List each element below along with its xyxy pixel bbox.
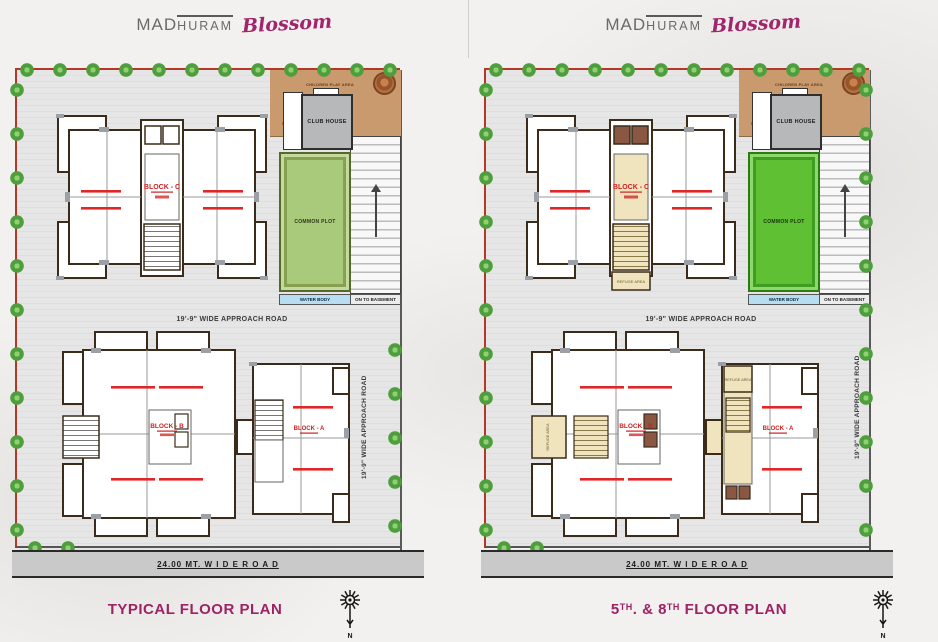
ramp-arrow-icon — [375, 189, 377, 237]
block-a-label: BLOCK - A — [294, 426, 325, 432]
common-plot: COMMON PLOT — [748, 152, 820, 292]
approach-road-label-vertical: 19'-9" WIDE APPROACH ROAD — [361, 352, 373, 502]
plan-title-sup: TH — [620, 602, 633, 612]
lift-shaft — [175, 432, 188, 447]
gazebo-icon — [842, 72, 865, 95]
children-play-label: CHILDREN PLAY AREA — [306, 82, 354, 87]
brand-logo: MADHURAM Blossom — [0, 13, 469, 35]
refuge-area-label: REFUGE AREA — [724, 378, 751, 382]
club-house-lobby — [283, 92, 303, 150]
page: MADHURAM Blossom CHILDREN PLAY AREA ON T… — [0, 0, 938, 642]
refuge-area-label: REFUGE AREA — [617, 279, 646, 284]
brand-logo: MADHURAM Blossom — [469, 13, 938, 35]
main-road: 24.00 MT. W I D E R O A D — [481, 550, 893, 578]
club-house-lobby — [752, 92, 772, 150]
staircase — [726, 398, 750, 432]
block-ab-buildings: REFUGE AREA REFUGE AREA — [530, 328, 820, 540]
approach-road-label: 19'-9" WIDE APPROACH ROAD — [586, 316, 816, 323]
water-body: WATER BODY — [748, 294, 820, 305]
approach-road-label: 19'-9" WIDE APPROACH ROAD — [117, 316, 347, 323]
tree-row-icon — [478, 68, 494, 554]
staircase — [574, 416, 608, 458]
plan-title-text: FLOOR PLAN — [680, 601, 787, 618]
brand-name-mad: MAD — [605, 15, 646, 34]
club-house: CLUB HOUSE — [301, 94, 353, 150]
block-a-label: BLOCK - A — [763, 426, 794, 432]
staircase — [144, 224, 180, 270]
staircase — [63, 416, 99, 458]
plan-title-sup: TH — [667, 602, 680, 612]
core-lobby — [255, 440, 283, 482]
plan-title: 5TH. & 8TH FLOOR PLAN — [519, 601, 879, 618]
lift-shaft — [726, 486, 737, 499]
brand-name-huram: HURAM — [177, 15, 233, 33]
plan-title-text: . & 8 — [633, 601, 667, 618]
north-label: N — [347, 633, 352, 640]
site-plan: CHILDREN PLAY AREA ON TO BASEMENT CLUB H… — [484, 68, 869, 548]
block-c-label: BLOCK - C — [613, 184, 649, 191]
basement-ramp — [819, 136, 870, 294]
block-ab-buildings: BLOCK - B BLOCK - A — [61, 328, 351, 540]
brand-name-mad: MAD — [136, 15, 177, 34]
lift-shaft — [644, 432, 657, 447]
north-compass-icon: N — [871, 588, 895, 640]
basement-label: ON TO BASEMENT — [350, 294, 401, 305]
lift-shaft — [614, 126, 630, 144]
common-plot: COMMON PLOT — [279, 152, 351, 292]
block-b-label: BLOCK - B — [150, 423, 184, 430]
plan-title-text: TYPICAL FLOOR PLAN — [108, 601, 283, 618]
lift-shaft — [632, 126, 648, 144]
plan-title: TYPICAL FLOOR PLAN — [15, 601, 375, 618]
tree-row-icon — [9, 68, 25, 554]
lift-shaft — [145, 126, 161, 144]
brand-name-script: Blossom — [711, 11, 802, 38]
brand-name-script: Blossom — [242, 11, 333, 38]
block-c-building: BLOCK - C — [55, 104, 269, 292]
plan-typical: MADHURAM Blossom CHILDREN PLAY AREA ON T… — [0, 0, 469, 642]
plan-title-text: 5 — [611, 601, 620, 618]
basement-label: ON TO BASEMENT — [819, 294, 870, 305]
approach-road-label-vertical: 19'-9" WIDE APPROACH ROAD — [854, 332, 866, 482]
main-road-label: 24.00 MT. W I D E R O A D — [157, 560, 279, 569]
lift-shaft — [739, 486, 750, 499]
children-play-label: CHILDREN PLAY AREA — [775, 82, 823, 87]
water-body: WATER BODY — [279, 294, 351, 305]
main-road: 24.00 MT. W I D E R O A D — [12, 550, 424, 578]
north-compass-icon: N — [338, 588, 362, 640]
north-label: N — [880, 633, 885, 640]
block-b-label: BLOCK - B — [619, 423, 653, 430]
site-plan: CHILDREN PLAY AREA ON TO BASEMENT CLUB H… — [15, 68, 400, 548]
basement-ramp — [350, 136, 401, 294]
staircase — [613, 224, 649, 270]
gazebo-icon — [373, 72, 396, 95]
brand-name-huram: HURAM — [646, 15, 702, 33]
ramp-arrow-icon — [844, 189, 846, 237]
block-c-building: REFUGE AREA BLOCK - C — [524, 104, 738, 292]
staircase — [255, 400, 283, 440]
plan-5th-8th: MADHURAM Blossom CHILDREN PLAY AREA ON T… — [469, 0, 938, 642]
block-c-label: BLOCK - C — [144, 184, 180, 191]
refuge-area-label: REFUGE AREA — [546, 423, 550, 450]
lift-shaft — [163, 126, 179, 144]
main-road-label: 24.00 MT. W I D E R O A D — [626, 560, 748, 569]
club-house: CLUB HOUSE — [770, 94, 822, 150]
